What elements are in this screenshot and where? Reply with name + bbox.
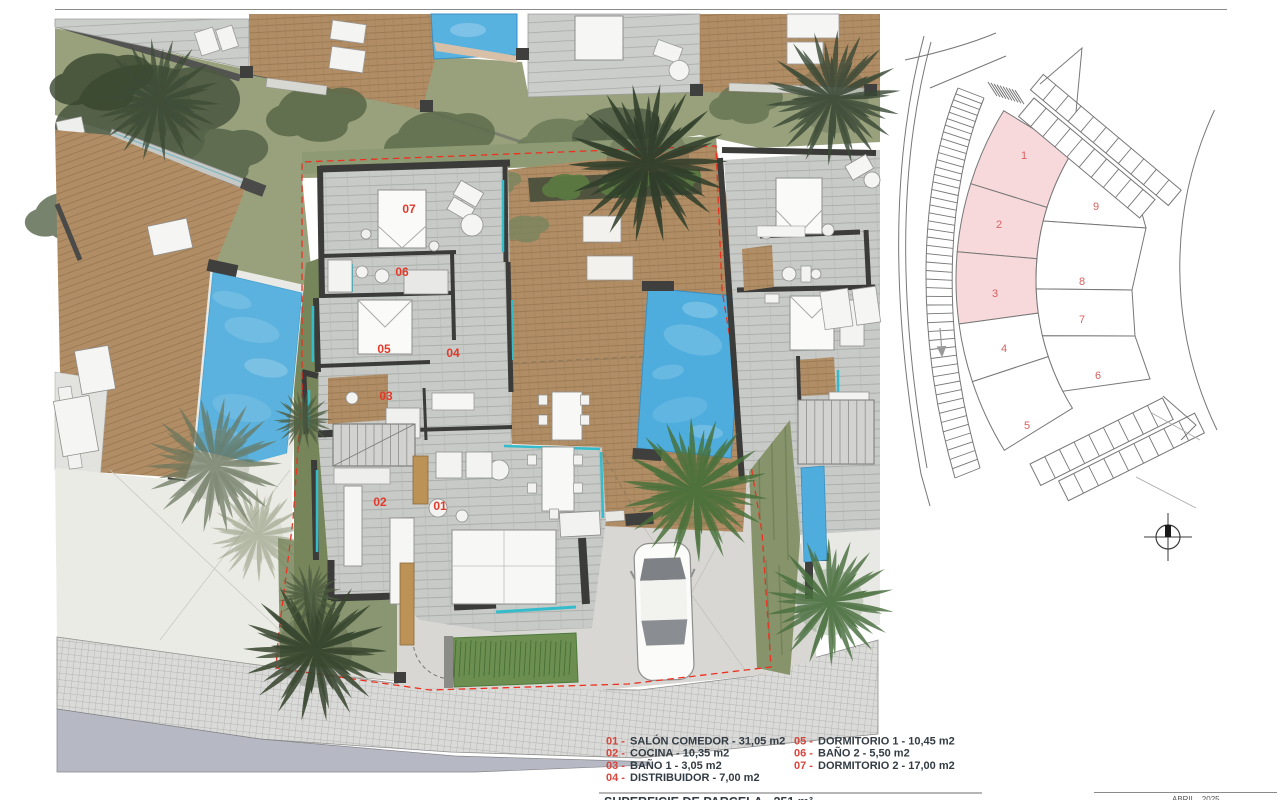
svg-text:03: 03	[379, 389, 393, 403]
svg-text:DORMITORIO 1 - 10,45 m2: DORMITORIO 1 - 10,45 m2	[818, 736, 955, 748]
svg-text:06 -: 06 -	[794, 748, 813, 760]
svg-text:07 -: 07 -	[794, 760, 813, 772]
svg-text:06: 06	[395, 265, 409, 279]
svg-text:8: 8	[1079, 276, 1085, 288]
svg-text:07: 07	[402, 202, 416, 216]
svg-text:4: 4	[1001, 343, 1007, 355]
svg-text:COCINA - 10,35 m2: COCINA - 10,35 m2	[630, 748, 729, 760]
svg-text:BAÑO 1 - 3,05 m2: BAÑO 1 - 3,05 m2	[630, 759, 722, 772]
svg-text:02: 02	[373, 495, 387, 509]
svg-text:02 -: 02 -	[606, 748, 625, 760]
svg-text:5: 5	[1024, 420, 1030, 432]
svg-text:01 -: 01 -	[606, 736, 625, 748]
svg-text:6: 6	[1095, 370, 1101, 382]
svg-text:03 -: 03 -	[606, 760, 625, 772]
svg-text:ABRIL 2025: ABRIL 2025	[1172, 795, 1220, 800]
svg-text:SUPERFICIE DE PARCELA - 251 m²: SUPERFICIE DE PARCELA - 251 m²	[604, 795, 813, 800]
svg-text:3: 3	[992, 288, 998, 300]
svg-text:SALÓN COMEDOR - 31,05 m2: SALÓN COMEDOR - 31,05 m2	[630, 735, 785, 748]
svg-text:2: 2	[996, 219, 1002, 231]
svg-text:01: 01	[433, 499, 447, 513]
svg-text:DORMITORIO 2 - 17,00 m2: DORMITORIO 2 - 17,00 m2	[818, 760, 955, 772]
svg-text:DISTRIBUIDOR - 7,00 m2: DISTRIBUIDOR - 7,00 m2	[630, 772, 760, 784]
svg-text:05: 05	[377, 342, 391, 356]
svg-text:BAÑO 2 - 5,50 m2: BAÑO 2 - 5,50 m2	[818, 747, 910, 760]
svg-text:04 -: 04 -	[606, 772, 625, 784]
svg-text:05 -: 05 -	[794, 736, 813, 748]
svg-text:04: 04	[446, 346, 460, 360]
svg-text:9: 9	[1093, 201, 1099, 213]
svg-text:7: 7	[1079, 314, 1085, 326]
svg-text:1: 1	[1021, 150, 1027, 162]
